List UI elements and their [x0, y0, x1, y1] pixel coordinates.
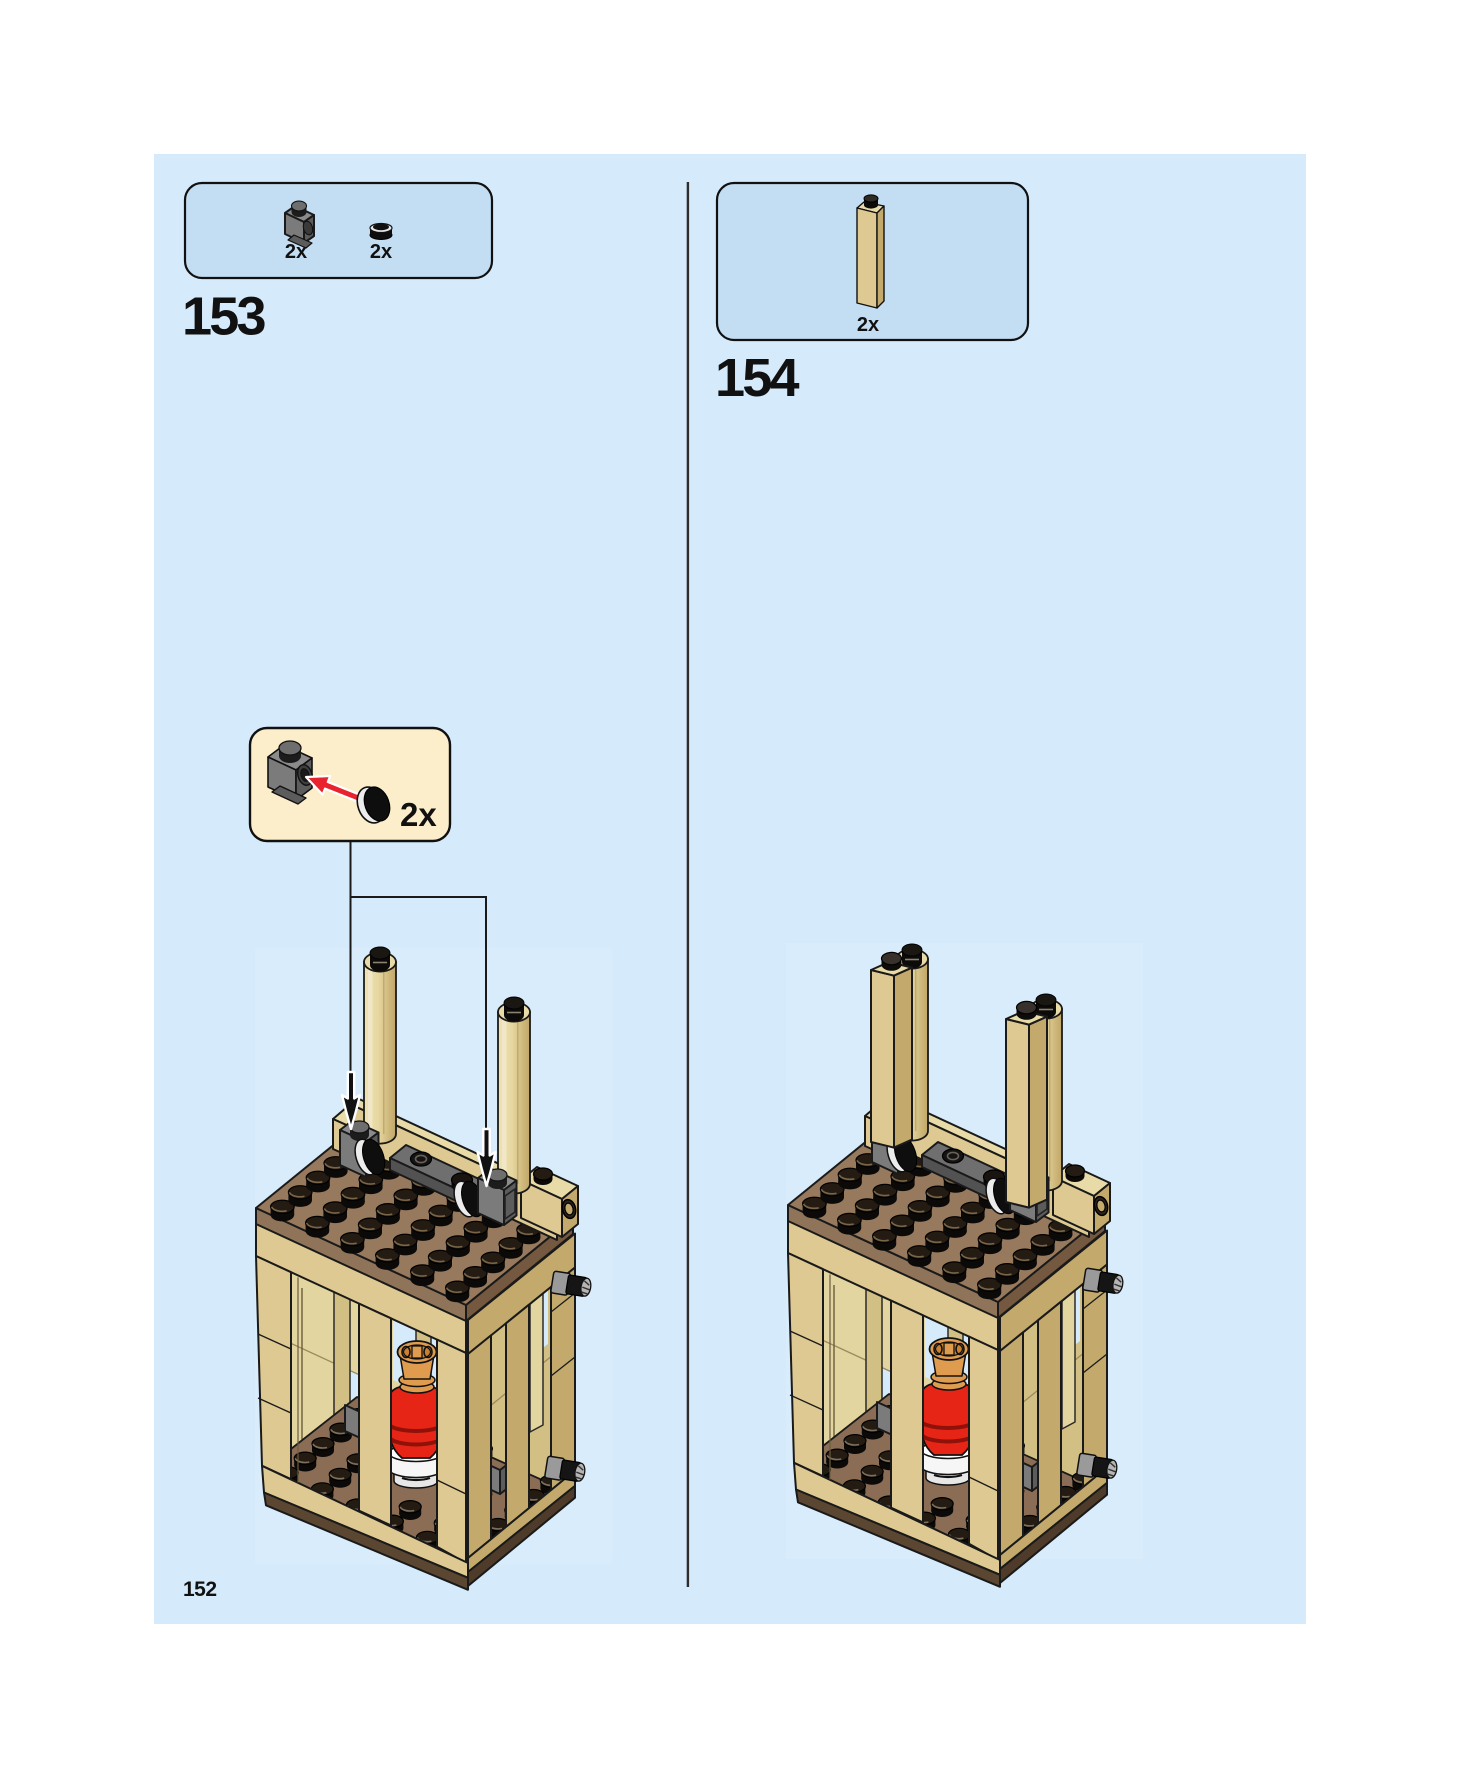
svg-text:154: 154: [715, 348, 799, 408]
svg-text:152: 152: [183, 1578, 217, 1601]
svg-text:153: 153: [182, 287, 265, 347]
svg-text:2x: 2x: [370, 241, 392, 263]
svg-text:2x: 2x: [400, 796, 437, 833]
svg-text:2x: 2x: [857, 314, 879, 336]
svg-text:2x: 2x: [285, 241, 307, 263]
